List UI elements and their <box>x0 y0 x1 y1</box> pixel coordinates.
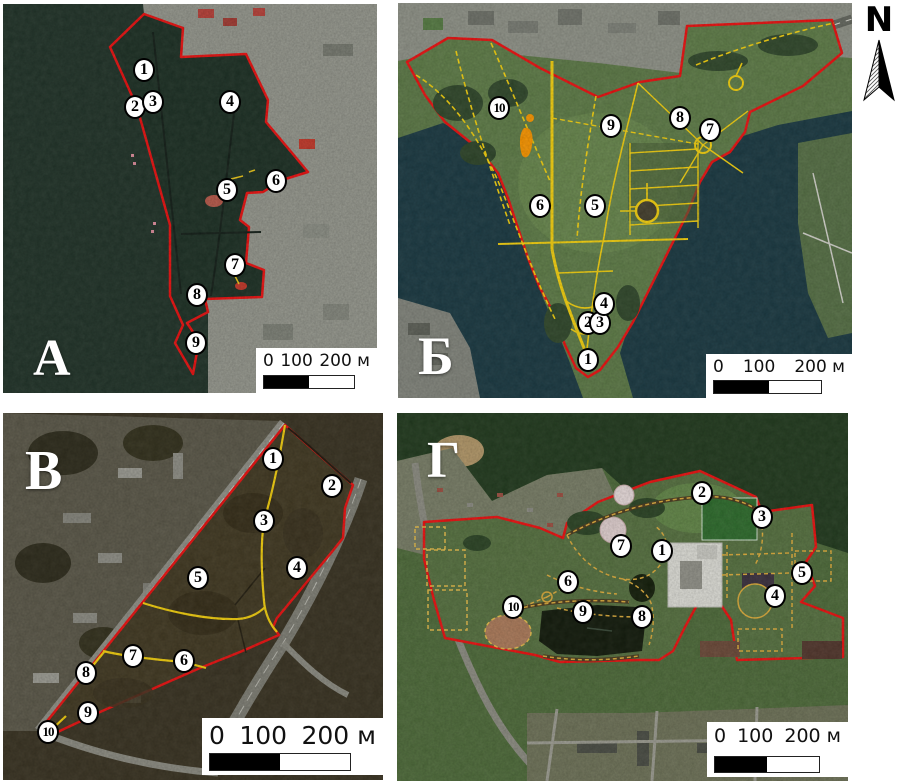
waypoint-marker-g-7: 7 <box>610 534 632 558</box>
north-arrow-icon <box>853 38 905 108</box>
map-panel-a: А 123456789 0 100 200 м <box>3 4 377 393</box>
waypoint-marker-v-9: 9 <box>77 701 99 725</box>
map-panel-v: В 12345678910 0 100 200 м <box>3 413 383 780</box>
waypoint-marker-g-10: 10 <box>502 595 524 619</box>
scale-bar-a: 0 100 200 м <box>256 348 377 393</box>
panel-letter-g: Г <box>427 435 460 487</box>
waypoint-marker-g-8: 8 <box>631 605 653 629</box>
waypoint-marker-v-10: 10 <box>37 720 59 744</box>
waypoint-marker-g-3: 3 <box>751 505 773 529</box>
scale-labels: 0 100 200 м <box>713 357 845 377</box>
waypoint-marker-v-7: 7 <box>122 644 144 668</box>
waypoint-marker-a-4: 4 <box>219 90 241 114</box>
waypoint-marker-a-8: 8 <box>186 283 208 307</box>
waypoint-marker-g-2: 2 <box>691 481 713 505</box>
scale-bar-graphic <box>263 375 355 389</box>
north-arrow: N <box>853 2 905 110</box>
waypoint-marker-b-1: 1 <box>577 348 599 372</box>
waypoint-marker-b-8: 8 <box>669 106 691 130</box>
waypoint-marker-b-4: 4 <box>593 292 615 316</box>
waypoint-marker-a-3: 3 <box>142 90 164 114</box>
waypoint-marker-v-5: 5 <box>187 566 209 590</box>
north-label: N <box>853 2 905 38</box>
scale-labels: 0 100 200 м <box>714 725 841 747</box>
map-panel-b: Б 12345678910 0 100 200 м <box>398 3 852 398</box>
scale-bar-graphic <box>714 756 820 773</box>
figure-four-park-maps: { "figure": { "description_visible_text_… <box>0 0 906 781</box>
scale-bar-g: 0 100 200 м <box>707 722 848 777</box>
waypoint-marker-b-9: 9 <box>600 114 622 138</box>
panel-letter-v: В <box>25 443 62 499</box>
waypoint-marker-g-1: 1 <box>651 539 673 563</box>
waypoint-marker-b-7: 7 <box>699 118 721 142</box>
waypoint-marker-a-9: 9 <box>185 331 207 355</box>
waypoint-marker-v-6: 6 <box>173 649 195 673</box>
waypoint-marker-g-5: 5 <box>791 561 813 585</box>
waypoint-marker-b-5: 5 <box>584 194 606 218</box>
scale-bar-b: 0 100 200 м <box>706 354 852 398</box>
scale-bar-graphic <box>713 380 822 394</box>
waypoint-marker-v-8: 8 <box>75 661 97 685</box>
map-panel-g: Г 12345678910 0 100 200 м <box>397 413 848 781</box>
waypoint-marker-a-7: 7 <box>224 253 246 277</box>
waypoint-marker-a-6: 6 <box>265 169 287 193</box>
waypoint-marker-v-1: 1 <box>262 447 284 471</box>
satellite-map-b <box>398 3 852 398</box>
panel-letter-a: А <box>33 333 71 385</box>
waypoint-marker-v-3: 3 <box>253 509 275 533</box>
scale-bar-v: 0 100 200 м <box>202 718 383 775</box>
waypoint-marker-a-5: 5 <box>216 178 238 202</box>
scale-bar-graphic <box>209 753 351 771</box>
scale-labels: 0 100 200 м <box>209 721 376 750</box>
waypoint-marker-v-2: 2 <box>321 474 343 498</box>
waypoint-marker-b-6: 6 <box>529 194 551 218</box>
scale-labels: 0 100 200 м <box>263 351 370 371</box>
waypoint-marker-b-10: 10 <box>488 96 510 120</box>
waypoint-marker-g-6: 6 <box>557 570 579 594</box>
waypoint-marker-g-9: 9 <box>572 600 594 624</box>
panel-letter-b: Б <box>418 329 454 383</box>
waypoint-marker-a-1: 1 <box>133 58 155 82</box>
waypoint-marker-v-4: 4 <box>286 556 308 580</box>
waypoint-marker-g-4: 4 <box>764 584 786 608</box>
